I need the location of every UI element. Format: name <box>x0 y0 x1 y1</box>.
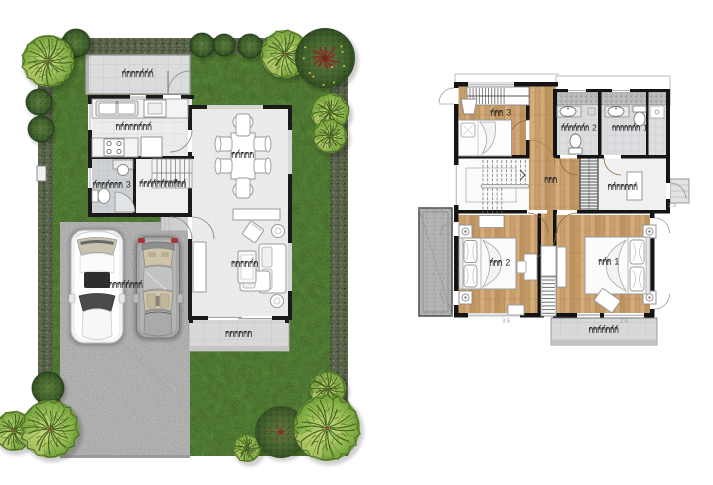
svg-text:3: 3 <box>126 180 131 190</box>
svg-text:3: 3 <box>506 108 511 118</box>
svg-text:1: 1 <box>614 257 619 267</box>
svg-text:1: 1 <box>643 123 648 133</box>
svg-text:2.5: 2.5 <box>620 319 628 325</box>
svg-text:2: 2 <box>592 123 597 133</box>
svg-text:2: 2 <box>505 258 510 268</box>
svg-text:2.3: 2.3 <box>668 203 676 209</box>
svg-text:3.5: 3.5 <box>502 319 510 325</box>
svg-text:2.3: 2.3 <box>436 207 444 213</box>
